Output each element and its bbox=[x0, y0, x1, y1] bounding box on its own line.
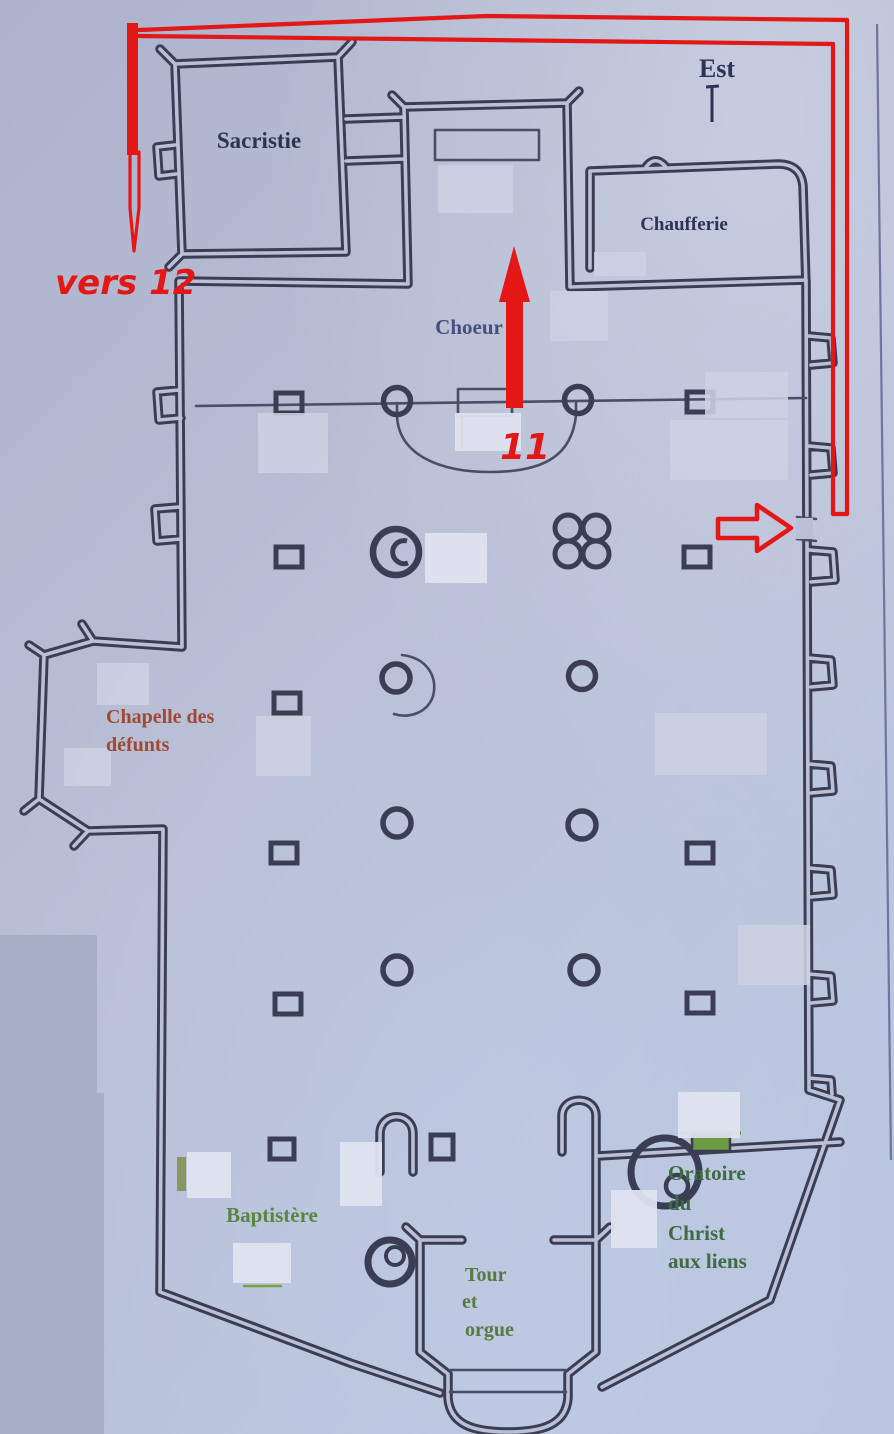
church-floor-plan-photo: Est Sacristie Chaufferie Choeur Chapelle… bbox=[0, 0, 894, 1434]
blur-patch bbox=[340, 1142, 382, 1206]
blur-patch bbox=[705, 372, 788, 418]
label-oratoire-line1: Oratoire bbox=[668, 1161, 746, 1185]
blur-patch bbox=[738, 925, 810, 985]
blur-patch bbox=[438, 165, 513, 213]
blur-patch bbox=[258, 413, 328, 473]
blur-patch bbox=[550, 291, 608, 341]
route-left-bar bbox=[127, 23, 138, 155]
blur-patch bbox=[611, 1190, 657, 1248]
east-door-gap bbox=[796, 518, 813, 539]
blur-patch bbox=[425, 533, 487, 583]
blur-patch bbox=[187, 1152, 231, 1198]
east-compass-label: Est bbox=[699, 54, 735, 83]
label-chaufferie: Chaufferie bbox=[640, 214, 728, 235]
label-tour-line2: et bbox=[462, 1291, 478, 1313]
floor-plan-svg: Est Sacristie Chaufferie Choeur Chapelle… bbox=[0, 0, 894, 1434]
blur-patch bbox=[64, 748, 111, 786]
label-oratoire-line4: aux liens bbox=[668, 1249, 747, 1273]
green-door-marker bbox=[177, 1157, 186, 1191]
blur-patch bbox=[670, 420, 788, 480]
blur-patch bbox=[655, 713, 767, 775]
blur-patch bbox=[97, 663, 149, 705]
blur-patch bbox=[594, 252, 646, 276]
blur-patch bbox=[0, 1093, 104, 1434]
blur-patch bbox=[256, 716, 311, 776]
label-chapelle-line1: Chapelle des bbox=[106, 706, 215, 728]
blur-patch bbox=[0, 935, 97, 1093]
label-tour-line1: Tour bbox=[465, 1264, 507, 1286]
label-oratoire-line2: du bbox=[668, 1191, 692, 1215]
blur-patch bbox=[678, 1092, 740, 1138]
label-sacristie: Sacristie bbox=[217, 128, 301, 153]
label-vers-12: vers 12 bbox=[55, 263, 196, 303]
label-tour-line3: orgue bbox=[465, 1319, 514, 1341]
label-station-11: 11 bbox=[500, 427, 550, 468]
choir-up-arrow-shaft bbox=[506, 298, 523, 408]
blur-patch bbox=[233, 1243, 291, 1283]
label-baptistere: Baptistère bbox=[226, 1203, 318, 1227]
oratoire-altar bbox=[692, 1136, 730, 1151]
label-choeur: Choeur bbox=[435, 315, 503, 339]
label-chapelle-line2: défunts bbox=[106, 734, 170, 756]
label-oratoire-line3: Christ bbox=[668, 1221, 725, 1245]
